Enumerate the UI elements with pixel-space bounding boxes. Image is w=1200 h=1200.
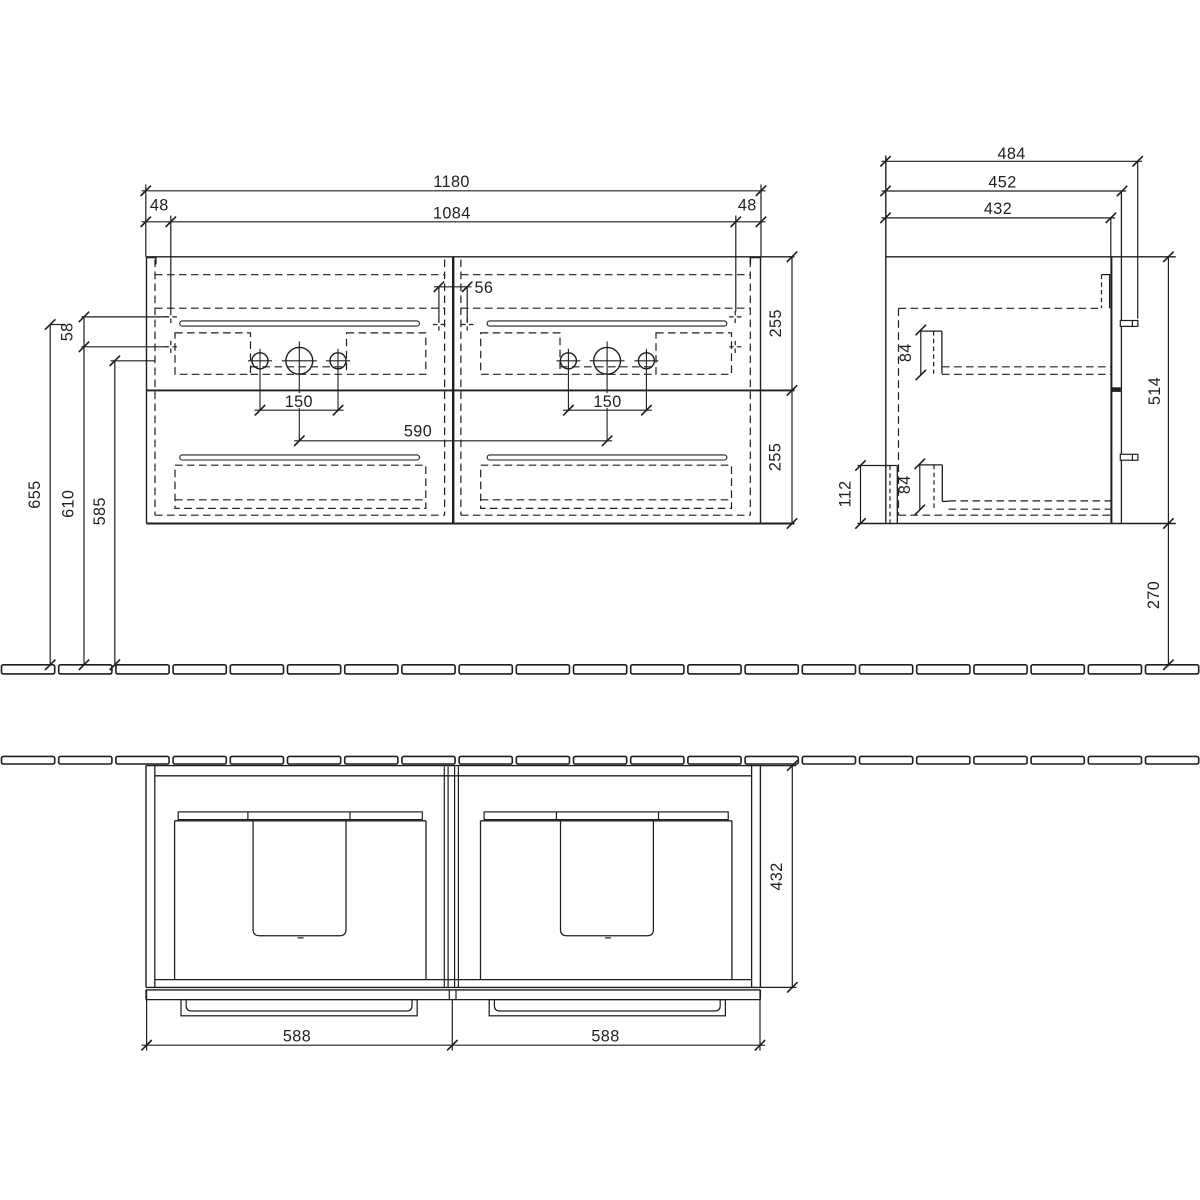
svg-text:84: 84 — [896, 475, 914, 494]
svg-text:484: 484 — [997, 145, 1025, 163]
svg-text:84: 84 — [897, 343, 915, 362]
svg-text:432: 432 — [768, 862, 786, 890]
svg-text:56: 56 — [475, 279, 494, 297]
svg-text:655: 655 — [26, 480, 44, 508]
svg-text:588: 588 — [283, 1027, 311, 1045]
svg-text:270: 270 — [1145, 581, 1163, 609]
svg-text:514: 514 — [1146, 377, 1164, 405]
svg-text:1180: 1180 — [433, 173, 469, 191]
svg-text:255: 255 — [767, 309, 785, 337]
svg-text:588: 588 — [591, 1027, 619, 1045]
svg-text:255: 255 — [767, 443, 785, 471]
svg-text:452: 452 — [988, 173, 1016, 191]
svg-text:1084: 1084 — [433, 204, 471, 222]
svg-text:610: 610 — [60, 490, 78, 518]
svg-text:48: 48 — [738, 197, 757, 215]
svg-text:150: 150 — [285, 393, 313, 411]
svg-text:58: 58 — [59, 322, 77, 341]
svg-text:48: 48 — [150, 197, 169, 215]
svg-text:150: 150 — [593, 393, 621, 411]
svg-text:585: 585 — [91, 497, 109, 525]
svg-text:432: 432 — [984, 200, 1012, 218]
svg-text:590: 590 — [404, 422, 432, 440]
svg-text:112: 112 — [837, 480, 855, 507]
